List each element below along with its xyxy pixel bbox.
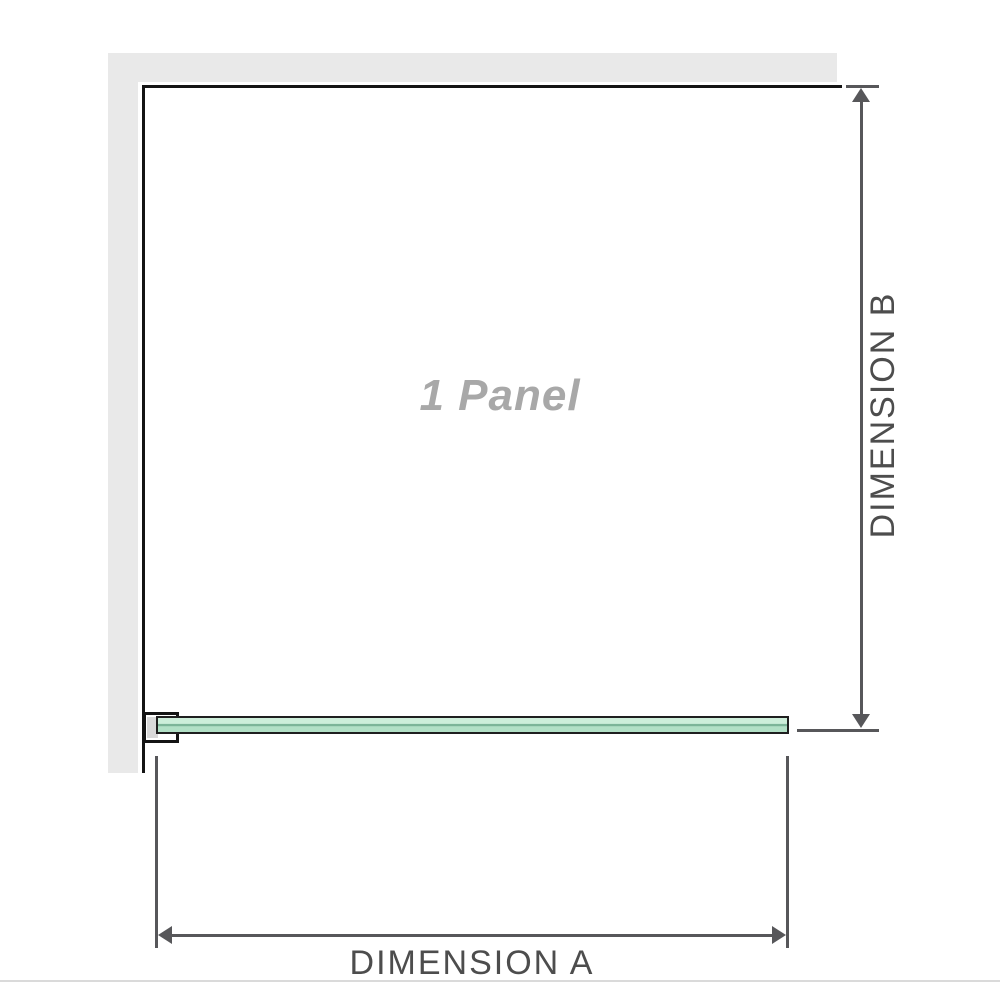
panel-outline-left bbox=[142, 85, 145, 773]
panel-outline-top bbox=[142, 85, 842, 88]
dimension-a-extension-right bbox=[786, 756, 789, 948]
arrow-down-icon bbox=[852, 714, 870, 728]
dimension-a-extension-left bbox=[155, 756, 158, 948]
image-bottom-border bbox=[0, 980, 1000, 982]
dimension-b-label: DIMENSION B bbox=[863, 115, 903, 715]
wall-top-strip bbox=[108, 53, 837, 82]
dimension-a-label: DIMENSION A bbox=[172, 943, 772, 983]
wall-left-strip bbox=[108, 53, 138, 773]
dimension-a-line bbox=[170, 934, 774, 937]
panel-count-label: 1 Panel bbox=[300, 366, 700, 426]
arrow-left-icon bbox=[158, 926, 172, 944]
glass-panel bbox=[156, 716, 789, 734]
arrow-up-icon bbox=[852, 88, 870, 102]
arrow-right-icon bbox=[772, 926, 786, 944]
dimension-b-tick-bottom bbox=[797, 729, 879, 732]
panel-dimension-diagram: 1 Panel DIMENSION B DIMENSION A bbox=[0, 0, 1000, 1000]
